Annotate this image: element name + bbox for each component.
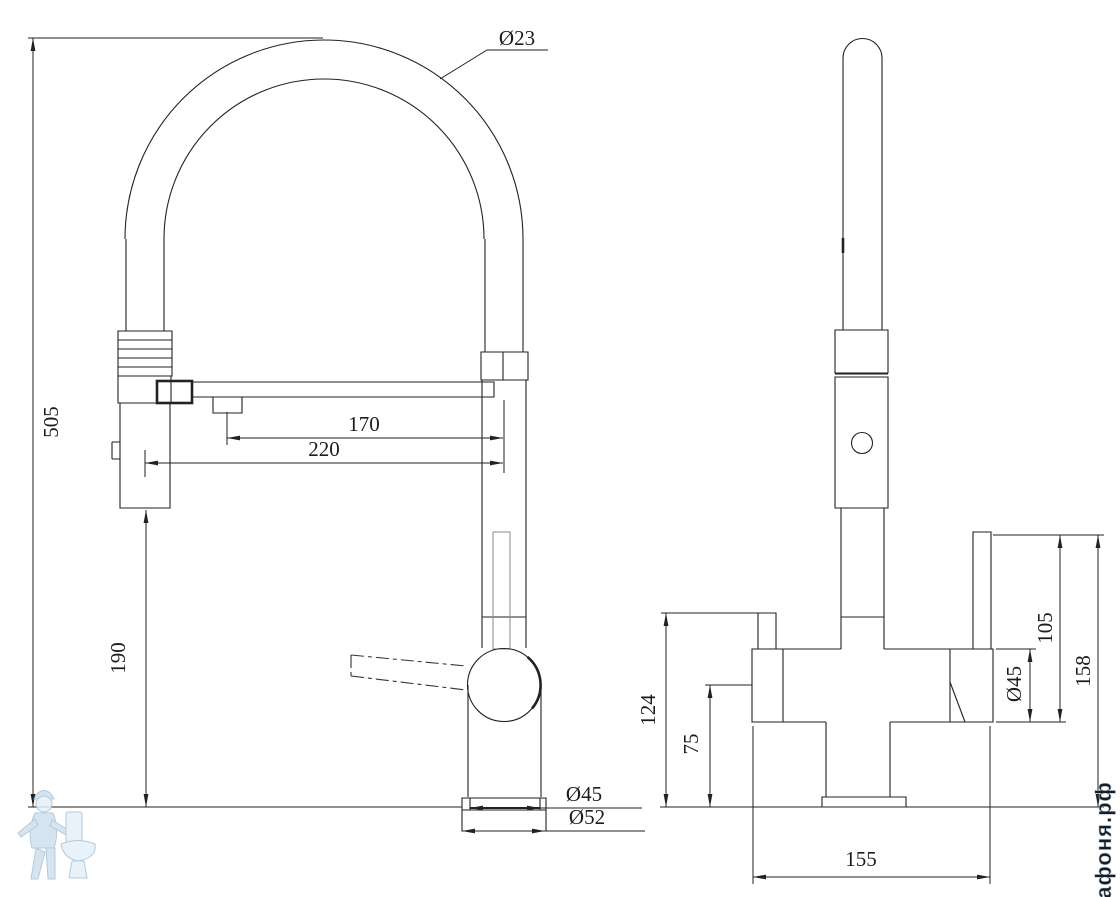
faucet-technical-drawing: Ø23 505 170 220 190 Ø45	[0, 0, 1120, 897]
dim-spray-head-clearance-label: 190	[106, 642, 130, 674]
dim-overall-height-label: 505	[39, 406, 63, 438]
hose-coupling	[835, 330, 888, 377]
dim-spout-reach-label: 170	[348, 412, 380, 436]
toilet-base	[69, 861, 87, 878]
spout-holder-joint	[157, 381, 192, 403]
hose-coupling-nut	[481, 352, 528, 380]
dim-inlet-height: 124	[636, 613, 758, 807]
dim-spray-head-offset: 220	[145, 437, 503, 477]
dim-inlet-height-label: 124	[636, 694, 660, 726]
toilet-tank	[66, 812, 82, 842]
dim-outlet-height-label: 75	[679, 734, 703, 755]
dim-base-depth: 155	[753, 726, 990, 884]
dim-spray-head-clearance: 190	[106, 510, 146, 807]
dim-body-diameter-label: Ø45	[1002, 666, 1026, 702]
side-handle-lever	[973, 532, 991, 649]
hose-arch	[125, 40, 523, 352]
handle-rod	[493, 532, 510, 649]
plumber-leg-right	[46, 848, 55, 879]
right-arm	[884, 649, 993, 722]
dim-body-diameter: Ø45	[996, 649, 1066, 722]
dim-handle-to-deck: 158	[1071, 535, 1098, 807]
spray-head-ribbed-connector	[118, 331, 172, 376]
dim-overall-height: 505	[28, 38, 323, 807]
spray-head-body	[112, 376, 171, 508]
dim-outlet-height: 75	[679, 685, 752, 807]
drawing-page: Ø23 505 170 220 190 Ø45	[0, 0, 1120, 897]
plumber-leg-left	[31, 848, 45, 879]
side-base-flange	[822, 797, 906, 807]
inlet-collar	[758, 613, 776, 649]
lever-handle-phantom	[351, 655, 466, 690]
side-view: 124 75 Ø45 105 158 155	[636, 39, 1104, 885]
front-view: Ø23 505 170 220 190 Ø45	[28, 26, 645, 831]
toilet-bowl	[61, 841, 95, 862]
dim-base-top-diameter: Ø45	[470, 782, 642, 808]
dim-base-depth-label: 155	[845, 847, 877, 871]
dim-handle-to-deck-label: 158	[1071, 655, 1095, 687]
side-lower-column	[826, 722, 890, 797]
watermark-plumber-logo	[18, 791, 95, 880]
upper-body	[835, 377, 888, 508]
dim-spray-head-offset-label: 220	[308, 437, 340, 461]
mid-column	[841, 508, 884, 649]
base-flange	[462, 798, 546, 831]
aerator	[213, 397, 242, 413]
spout-bar	[192, 382, 494, 397]
dim-hose-diameter-label: Ø23	[499, 26, 535, 50]
plumber-torso	[30, 813, 57, 848]
body-screw-hole	[852, 433, 873, 454]
watermark-site-text: афоня.рф	[1091, 781, 1116, 897]
dim-base-bottom-diameter-label: Ø52	[569, 805, 605, 829]
dim-handle-to-outlet-label: 105	[1033, 612, 1057, 644]
left-arm	[752, 649, 841, 722]
dim-hose-diameter: Ø23	[440, 26, 548, 79]
dim-spout-reach: 170	[227, 400, 504, 473]
dim-base-top-diameter-label: Ø45	[566, 782, 602, 806]
lower-column	[468, 685, 541, 797]
hose-pipe	[843, 39, 882, 331]
plumber-head	[36, 796, 52, 812]
ball-joint-shading	[528, 657, 541, 709]
